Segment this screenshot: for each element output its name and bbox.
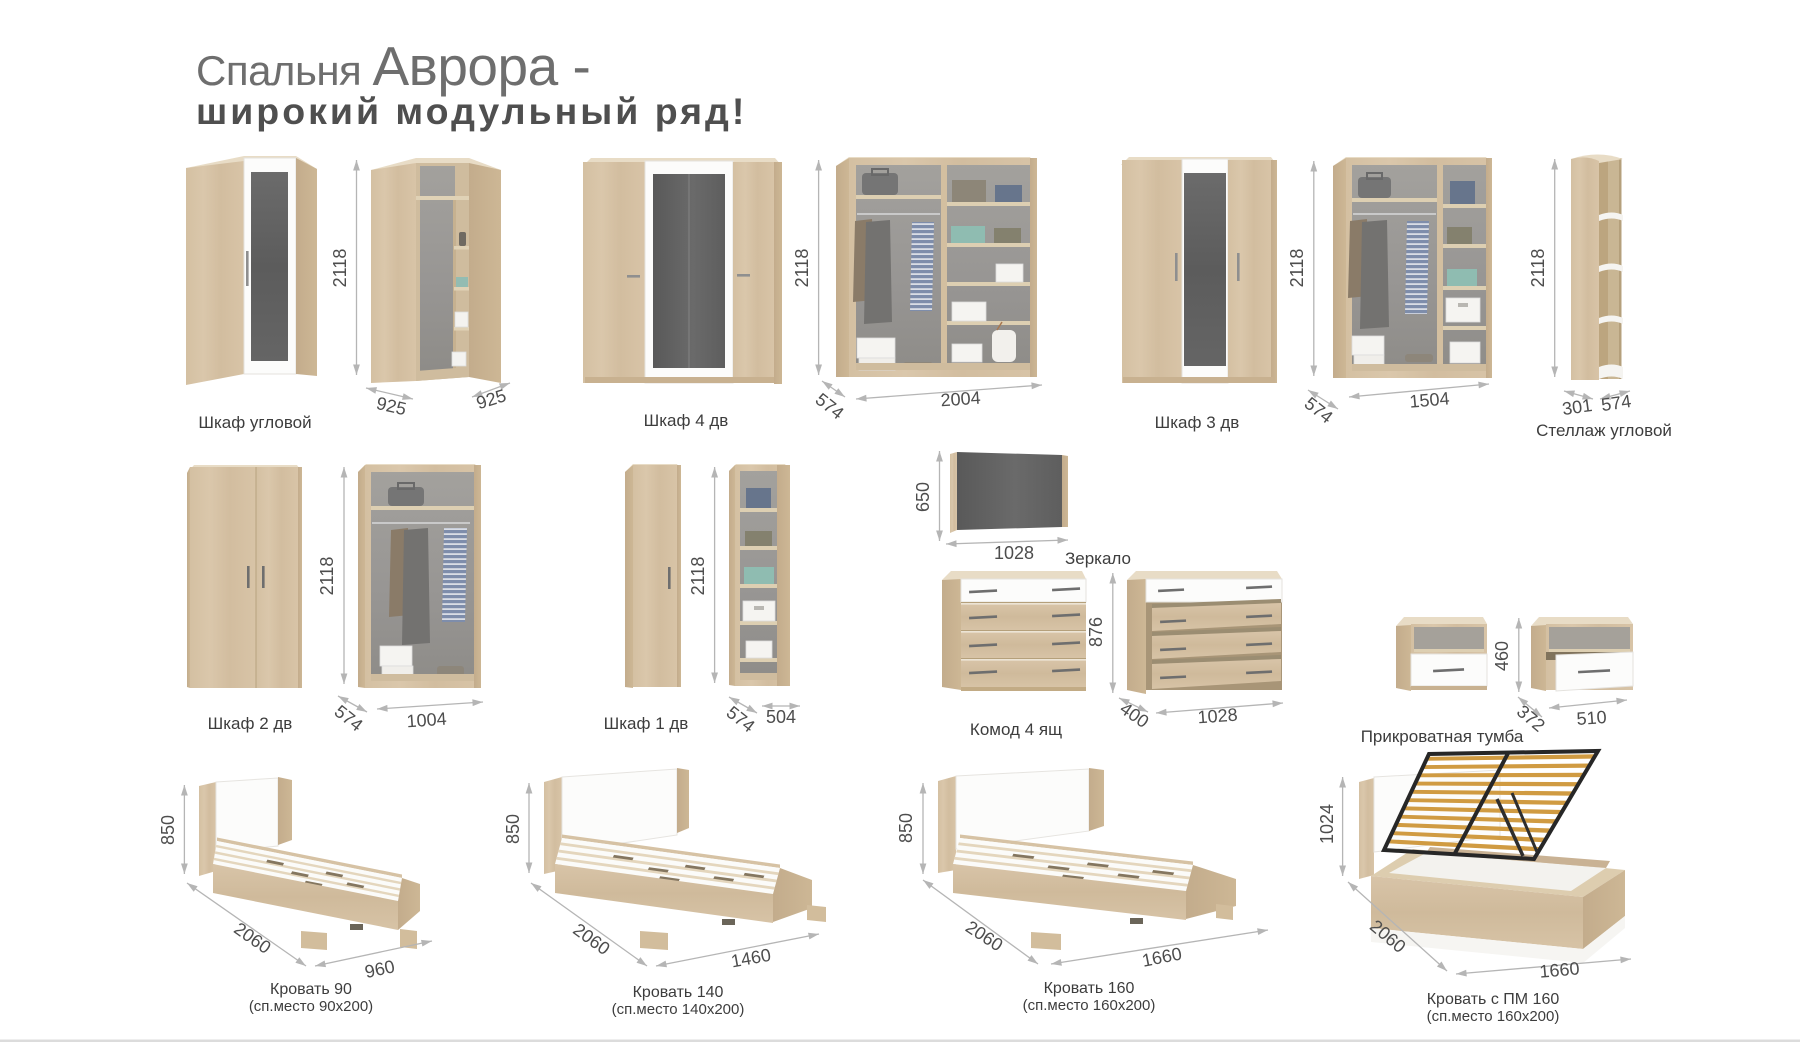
svg-text:Шкаф 1 дв: Шкаф 1 дв bbox=[604, 714, 689, 733]
svg-text:2118: 2118 bbox=[792, 249, 812, 288]
svg-text:876: 876 bbox=[1086, 617, 1106, 647]
svg-text:2118: 2118 bbox=[1287, 249, 1307, 288]
svg-text:1660: 1660 bbox=[1539, 958, 1581, 981]
svg-text:460: 460 bbox=[1492, 641, 1512, 671]
svg-text:(сп.место 90х200): (сп.место 90х200) bbox=[249, 998, 373, 1015]
svg-text:Кровать 160: Кровать 160 bbox=[1044, 980, 1135, 997]
svg-text:2060: 2060 bbox=[569, 919, 613, 959]
svg-text:Шкаф 4 дв: Шкаф 4 дв bbox=[644, 411, 729, 430]
svg-text:(сп.место 160х200): (сп.место 160х200) bbox=[1427, 1008, 1560, 1025]
svg-text:2004: 2004 bbox=[940, 388, 981, 411]
svg-text:2118: 2118 bbox=[330, 249, 350, 288]
svg-text:2060: 2060 bbox=[230, 918, 274, 957]
svg-text:1028: 1028 bbox=[1197, 705, 1238, 728]
svg-text:Стеллаж угловой: Стеллаж угловой bbox=[1536, 421, 1672, 440]
svg-text:650: 650 bbox=[913, 482, 933, 512]
svg-text:2118: 2118 bbox=[688, 557, 708, 596]
svg-text:Зеркало: Зеркало bbox=[1065, 549, 1131, 568]
svg-text:широкий модульный ряд!: широкий модульный ряд! bbox=[196, 90, 747, 132]
svg-text:1504: 1504 bbox=[1409, 388, 1451, 411]
svg-text:Шкаф угловой: Шкаф угловой bbox=[198, 413, 311, 432]
svg-text:850: 850 bbox=[896, 813, 916, 843]
svg-text:574: 574 bbox=[1600, 391, 1633, 415]
svg-text:Прикроватная тумба: Прикроватная тумба bbox=[1361, 727, 1524, 746]
svg-text:Кровать 140: Кровать 140 bbox=[633, 984, 724, 1001]
svg-text:Комод 4 ящ: Комод 4 ящ bbox=[970, 720, 1062, 739]
svg-text:2118: 2118 bbox=[1528, 249, 1548, 288]
svg-text:960: 960 bbox=[363, 956, 397, 982]
svg-text:Кровать 90: Кровать 90 bbox=[270, 981, 352, 998]
svg-text:301: 301 bbox=[1561, 395, 1594, 419]
svg-text:Спальня Аврора -: Спальня Аврора - bbox=[196, 35, 590, 97]
svg-text:Шкаф 3 дв: Шкаф 3 дв bbox=[1155, 413, 1240, 432]
svg-text:(сп.место 160х200): (сп.место 160х200) bbox=[1023, 997, 1156, 1014]
svg-text:400: 400 bbox=[1116, 698, 1152, 732]
svg-text:2118: 2118 bbox=[317, 557, 337, 596]
svg-text:925: 925 bbox=[474, 385, 509, 413]
svg-text:574: 574 bbox=[723, 702, 759, 736]
svg-text:Кровать с ПМ 160: Кровать с ПМ 160 bbox=[1427, 991, 1560, 1008]
svg-text:504: 504 bbox=[766, 707, 796, 727]
svg-text:574: 574 bbox=[1301, 393, 1337, 427]
svg-text:2060: 2060 bbox=[962, 917, 1006, 956]
svg-text:1460: 1460 bbox=[730, 945, 773, 972]
svg-text:1004: 1004 bbox=[406, 709, 447, 732]
svg-text:1028: 1028 bbox=[994, 543, 1034, 563]
svg-text:850: 850 bbox=[158, 815, 178, 845]
svg-text:Шкаф 2 дв: Шкаф 2 дв bbox=[208, 714, 293, 733]
svg-text:1660: 1660 bbox=[1140, 943, 1183, 970]
svg-text:850: 850 bbox=[503, 814, 523, 844]
svg-text:1024: 1024 bbox=[1317, 804, 1337, 844]
svg-text:(сп.место 140х200): (сп.место 140х200) bbox=[612, 1001, 745, 1018]
svg-text:510: 510 bbox=[1576, 707, 1607, 729]
